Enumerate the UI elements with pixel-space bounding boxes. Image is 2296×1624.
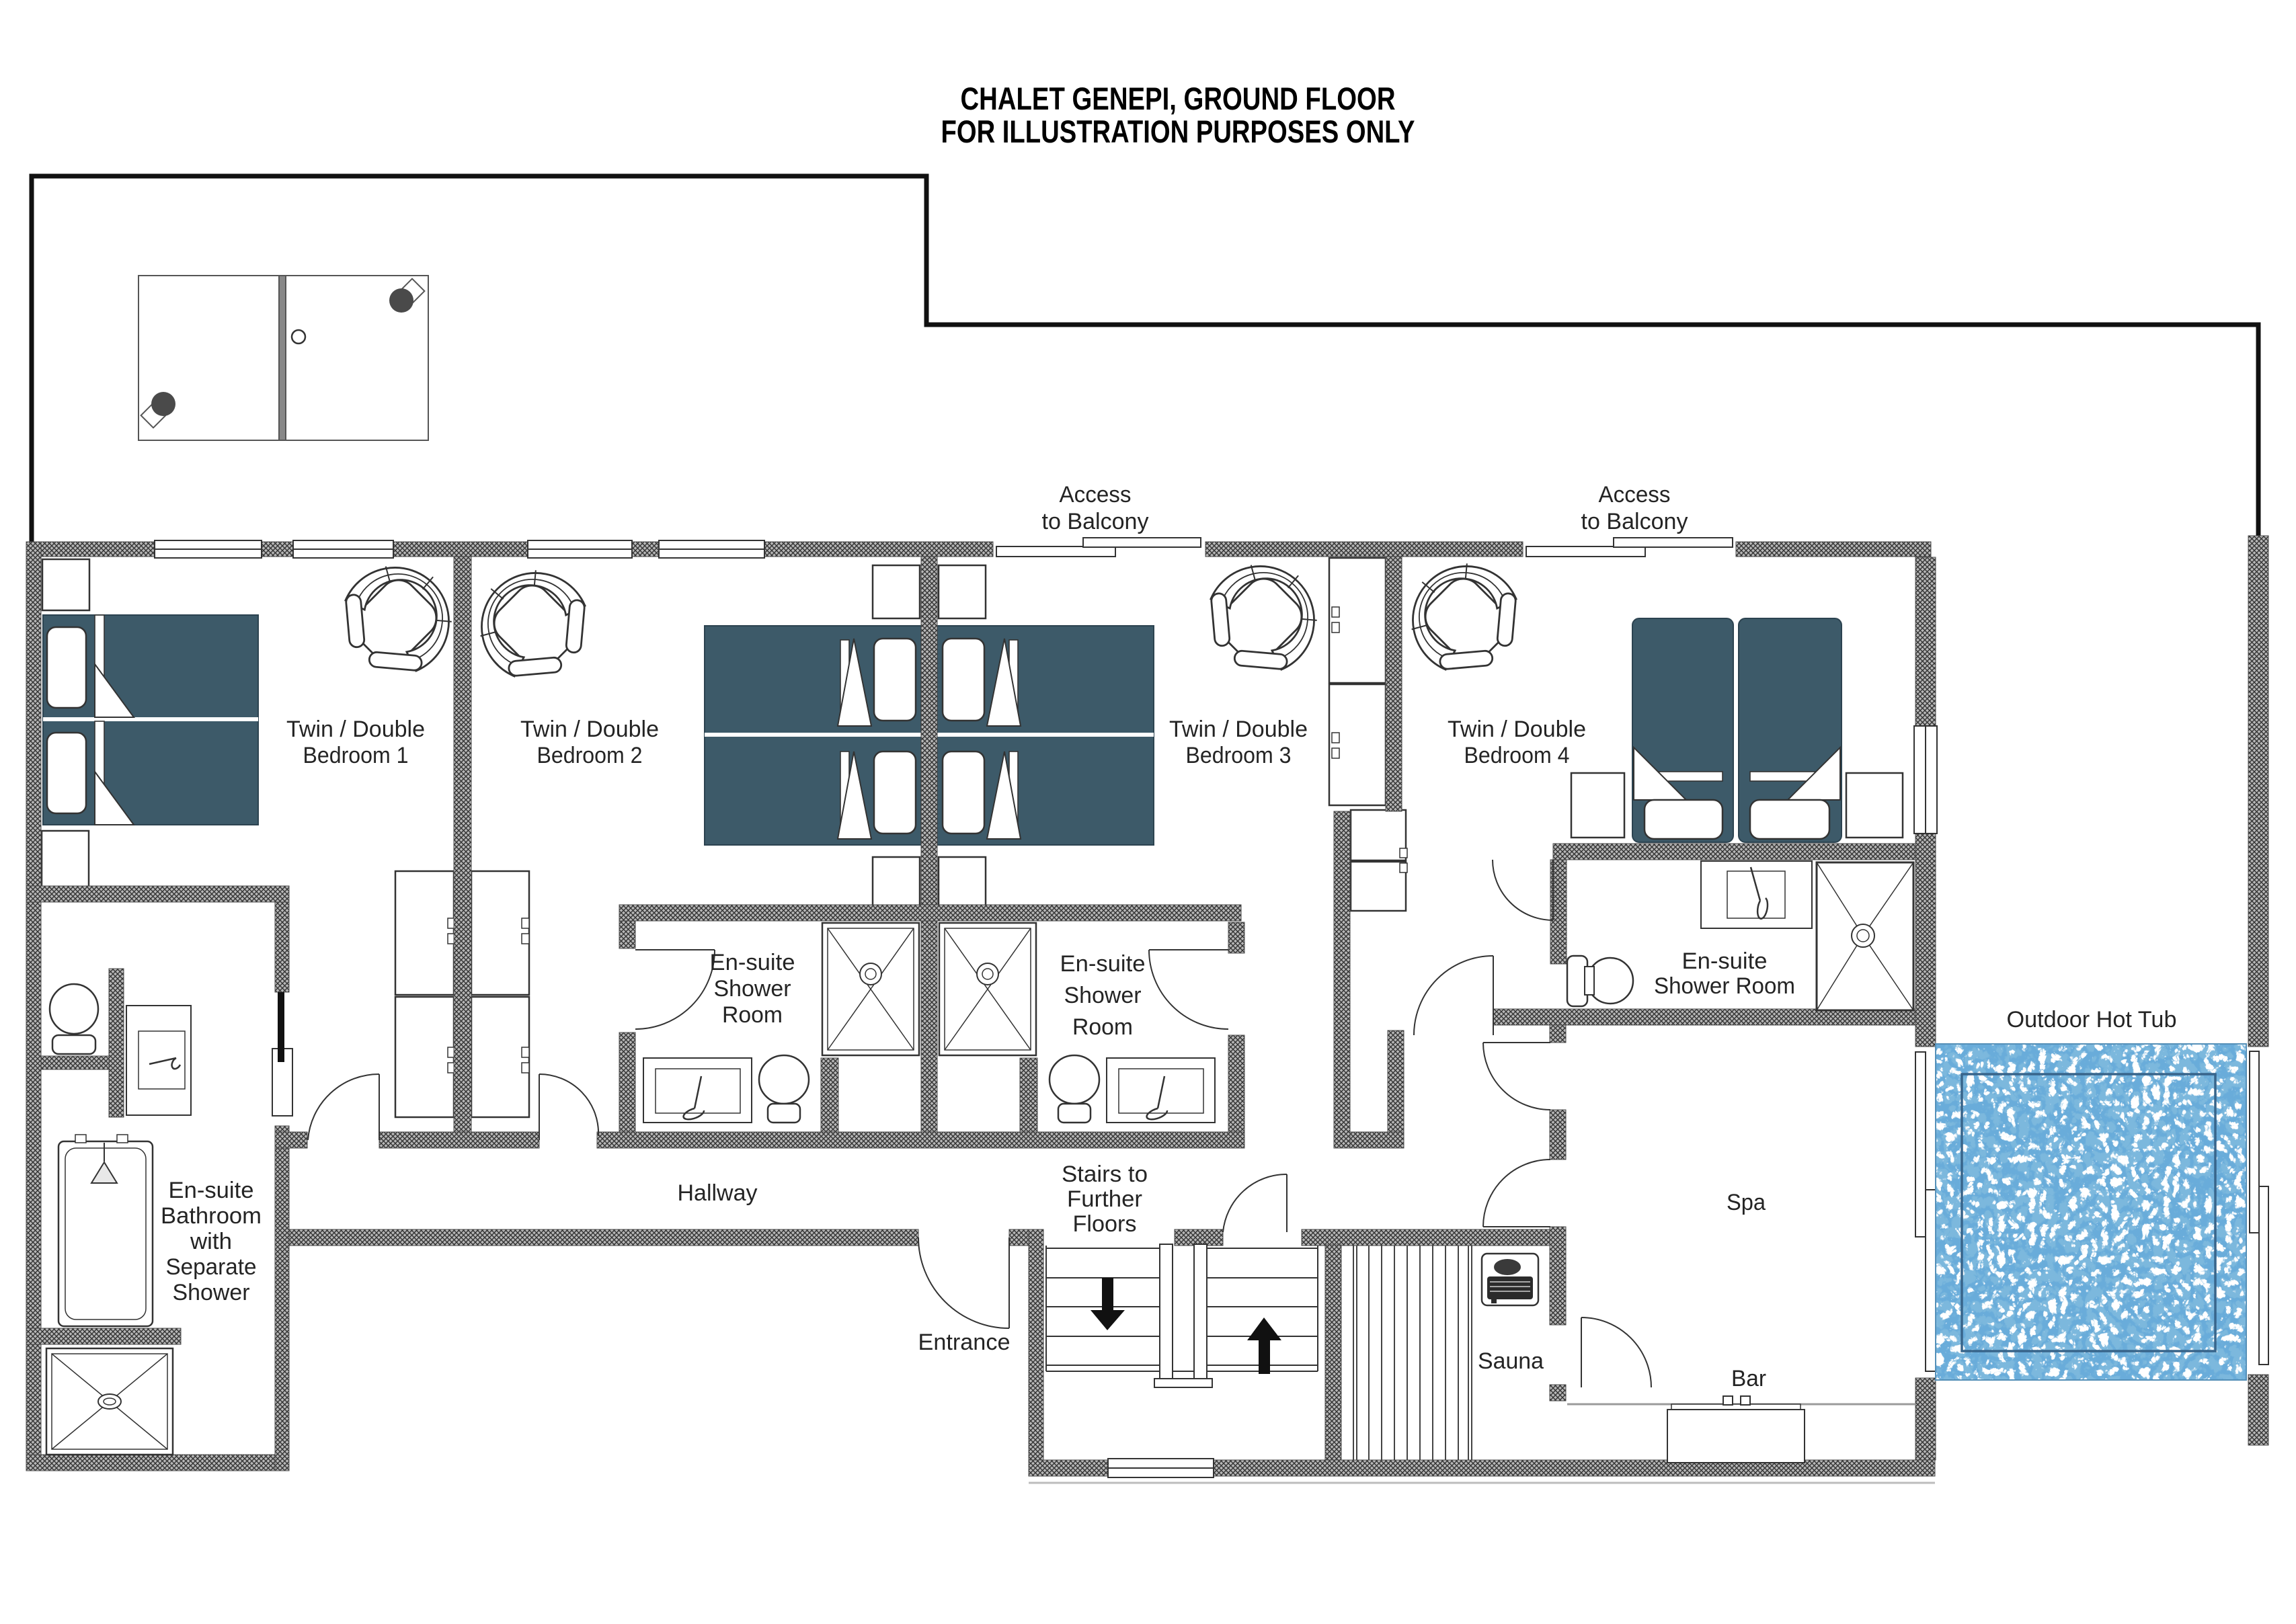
svg-text:Sauna: Sauna xyxy=(1478,1348,1544,1374)
svg-text:Access: Access xyxy=(1060,482,1132,507)
svg-text:En-suite: En-suite xyxy=(1682,948,1768,974)
svg-text:Entrance: Entrance xyxy=(918,1330,1011,1355)
svg-text:FOR ILLUSTRATION PURPOSES ONLY: FOR ILLUSTRATION PURPOSES ONLY xyxy=(941,114,1415,149)
svg-text:Floors: Floors xyxy=(1073,1211,1137,1237)
svg-text:Room: Room xyxy=(722,1002,783,1028)
svg-text:En-suite: En-suite xyxy=(1060,951,1146,977)
svg-text:Bedroom 3: Bedroom 3 xyxy=(1186,743,1292,768)
svg-text:Separate: Separate xyxy=(166,1254,257,1280)
svg-text:Room: Room xyxy=(1072,1014,1133,1040)
svg-text:Shower Room: Shower Room xyxy=(1654,973,1795,999)
svg-text:En-suite: En-suite xyxy=(169,1178,254,1203)
svg-text:Bar: Bar xyxy=(1731,1366,1766,1391)
svg-text:Bedroom 1: Bedroom 1 xyxy=(303,743,409,768)
svg-text:Stairs to: Stairs to xyxy=(1062,1162,1148,1187)
svg-text:Twin / Double: Twin / Double xyxy=(520,717,659,742)
svg-text:Bathroom: Bathroom xyxy=(161,1203,262,1229)
svg-text:Bedroom 2: Bedroom 2 xyxy=(537,743,643,768)
svg-text:Bedroom 4: Bedroom 4 xyxy=(1464,743,1570,768)
svg-text:Further: Further xyxy=(1067,1186,1142,1212)
svg-text:Spa: Spa xyxy=(1727,1190,1766,1215)
svg-text:to Balcony: to Balcony xyxy=(1042,509,1149,534)
svg-text:CHALET GENEPI, GROUND FLOOR: CHALET GENEPI, GROUND FLOOR xyxy=(961,81,1396,116)
svg-text:Twin / Double: Twin / Double xyxy=(1448,717,1586,742)
svg-text:Twin / Double: Twin / Double xyxy=(1169,717,1308,742)
svg-text:Shower: Shower xyxy=(173,1280,250,1305)
svg-text:En-suite: En-suite xyxy=(710,950,795,975)
svg-text:Twin / Double: Twin / Double xyxy=(286,717,425,742)
svg-text:Shower: Shower xyxy=(714,976,791,1002)
svg-text:to Balcony: to Balcony xyxy=(1581,509,1688,534)
svg-text:Shower: Shower xyxy=(1064,983,1142,1008)
svg-text:with: with xyxy=(190,1229,232,1254)
svg-text:Outdoor Hot Tub: Outdoor Hot Tub xyxy=(2007,1007,2177,1032)
svg-text:Access: Access xyxy=(1599,482,1671,507)
svg-text:Hallway: Hallway xyxy=(678,1180,758,1206)
